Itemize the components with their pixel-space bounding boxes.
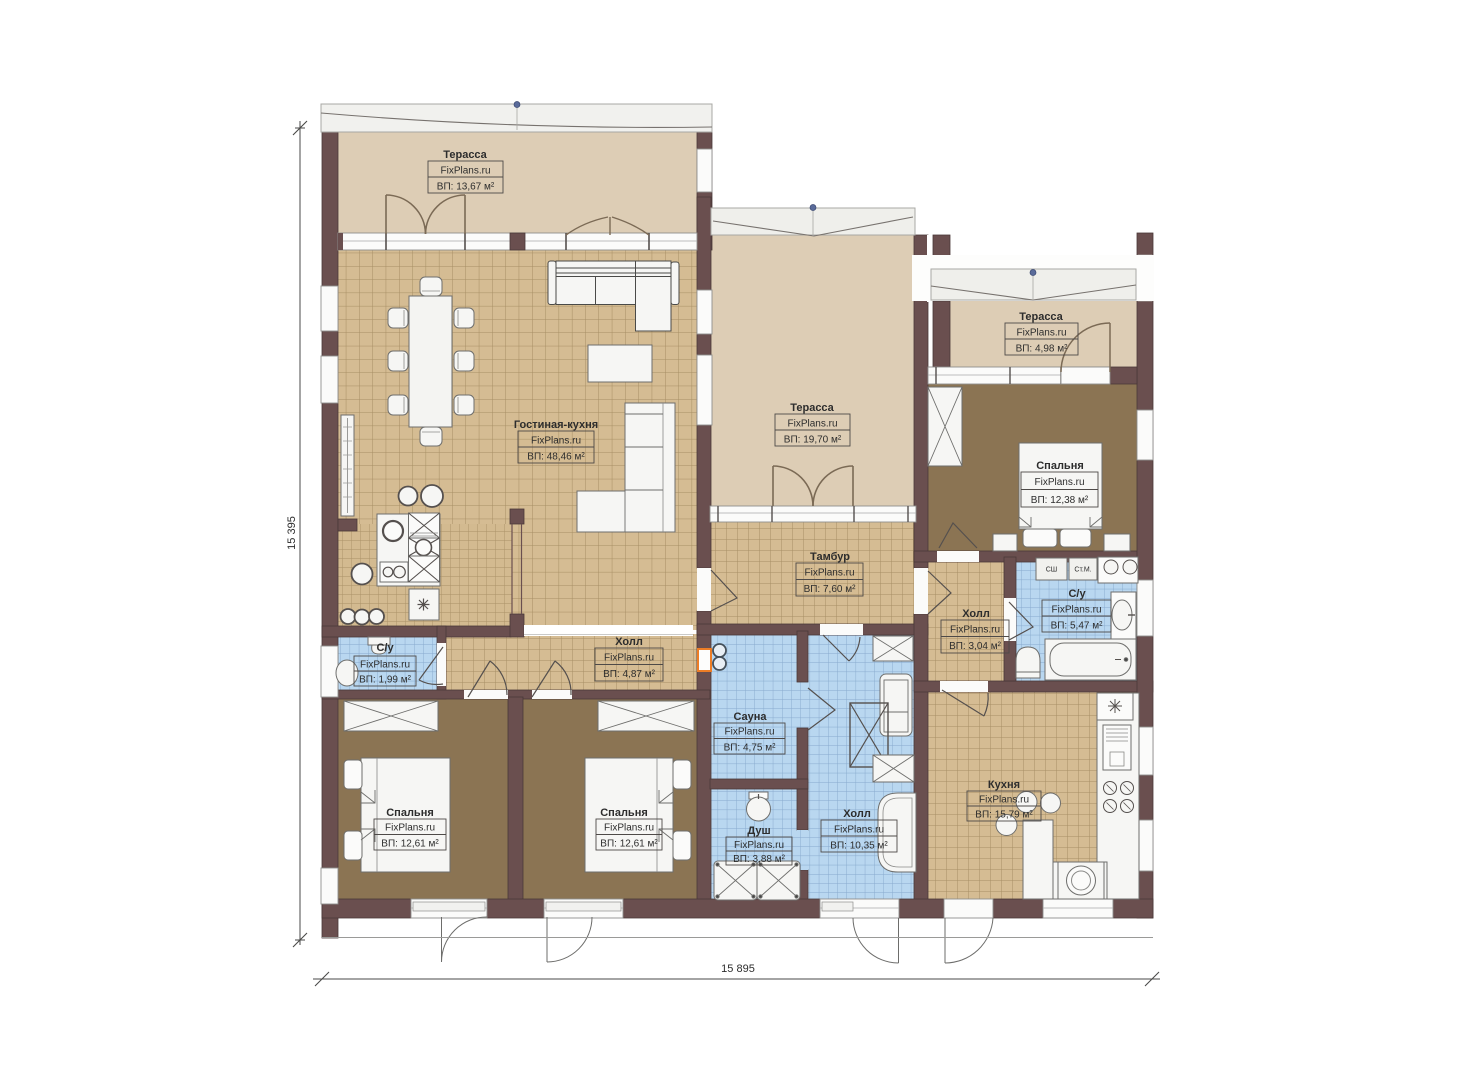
svg-text:Терасса: Терасса [443, 149, 487, 161]
svg-text:Сауна: Сауна [733, 711, 767, 723]
svg-text:Терасса: Терасса [790, 402, 834, 414]
svg-text:Спальня: Спальня [386, 807, 434, 819]
svg-text:Кухня: Кухня [988, 779, 1020, 791]
svg-text:С/у: С/у [376, 642, 394, 654]
svg-text:ВП: 10,35 м²: ВП: 10,35 м² [830, 841, 888, 852]
svg-text:Тамбур: Тамбур [810, 551, 850, 563]
svg-text:FixPlans.ru: FixPlans.ru [950, 625, 1000, 636]
svg-text:FixPlans.ru: FixPlans.ru [734, 840, 784, 851]
svg-text:СШ: СШ [1046, 567, 1057, 574]
svg-text:Ст.М.: Ст.М. [1074, 567, 1091, 574]
svg-text:FixPlans.ru: FixPlans.ru [724, 727, 774, 738]
svg-text:ВП: 4,87 м²: ВП: 4,87 м² [603, 669, 656, 680]
svg-text:Гостиная-кухня: Гостиная-кухня [514, 419, 598, 431]
svg-text:ВП: 12,61 м²: ВП: 12,61 м² [381, 839, 439, 850]
svg-text:Спальня: Спальня [1036, 460, 1084, 472]
svg-text:FixPlans.ru: FixPlans.ru [385, 823, 435, 834]
svg-text:ВП: 1,99 м²: ВП: 1,99 м² [359, 675, 412, 686]
svg-text:ВП: 12,61 м²: ВП: 12,61 м² [600, 839, 658, 850]
svg-text:Холл: Холл [615, 636, 643, 648]
svg-text:ВП: 4,75 м²: ВП: 4,75 м² [724, 743, 777, 754]
svg-text:FixPlans.ru: FixPlans.ru [360, 660, 410, 671]
svg-text:Спальня: Спальня [600, 807, 648, 819]
svg-text:ВП: 3,88 м²: ВП: 3,88 м² [733, 854, 786, 865]
svg-text:ВП: 5,47 м²: ВП: 5,47 м² [1051, 621, 1104, 632]
svg-text:15 395: 15 395 [286, 516, 298, 550]
svg-text:FixPlans.ru: FixPlans.ru [604, 653, 654, 664]
svg-text:FixPlans.ru: FixPlans.ru [440, 166, 490, 177]
svg-text:С/у: С/у [1068, 588, 1086, 600]
svg-text:FixPlans.ru: FixPlans.ru [604, 823, 654, 834]
svg-text:Холл: Холл [962, 608, 990, 620]
svg-text:FixPlans.ru: FixPlans.ru [1034, 477, 1084, 488]
svg-text:FixPlans.ru: FixPlans.ru [787, 419, 837, 430]
svg-text:FixPlans.ru: FixPlans.ru [1051, 605, 1101, 616]
svg-text:ВП: 4,98 м²: ВП: 4,98 м² [1016, 344, 1069, 355]
svg-text:15 895: 15 895 [721, 963, 755, 975]
svg-text:FixPlans.ru: FixPlans.ru [979, 795, 1029, 806]
svg-text:Холл: Холл [843, 808, 871, 820]
svg-text:Душ: Душ [747, 825, 770, 837]
svg-text:ВП: 12,38 м²: ВП: 12,38 м² [1031, 495, 1089, 506]
svg-text:ВП: 3,04 м²: ВП: 3,04 м² [949, 641, 1002, 652]
svg-text:ВП: 13,67 м²: ВП: 13,67 м² [437, 182, 495, 193]
svg-text:Терасса: Терасса [1019, 311, 1063, 323]
svg-text:ВП: 19,70 м²: ВП: 19,70 м² [784, 435, 842, 446]
svg-text:ВП: 15,79 м²: ВП: 15,79 м² [975, 810, 1033, 821]
svg-text:FixPlans.ru: FixPlans.ru [531, 436, 581, 447]
svg-text:ВП: 7,60 м²: ВП: 7,60 м² [804, 584, 857, 595]
svg-text:FixPlans.ru: FixPlans.ru [1016, 328, 1066, 339]
svg-text:FixPlans.ru: FixPlans.ru [804, 568, 854, 579]
svg-text:ВП: 48,46 м²: ВП: 48,46 м² [527, 452, 585, 463]
svg-text:FixPlans.ru: FixPlans.ru [834, 825, 884, 836]
